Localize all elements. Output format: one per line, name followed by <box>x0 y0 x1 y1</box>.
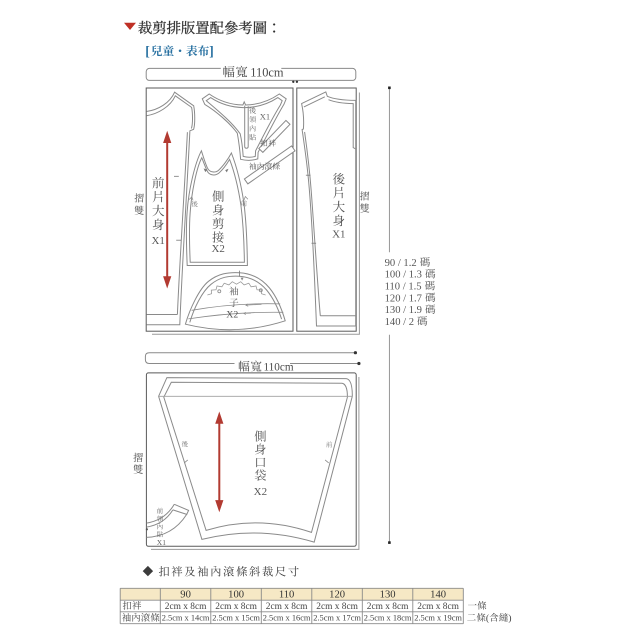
svg-text:110: 110 <box>279 589 295 600</box>
svg-text:2.5cm x 15cm: 2.5cm x 15cm <box>212 614 260 623</box>
svg-text:(: ( <box>486 613 489 624</box>
svg-text:X1: X1 <box>260 112 270 122</box>
svg-text:2cm x 8cm: 2cm x 8cm <box>417 602 459 612</box>
svg-text:110cm: 110cm <box>250 65 284 79</box>
svg-text:110 / 1.5: 110 / 1.5 <box>385 282 422 293</box>
svg-text:2cm x 8cm: 2cm x 8cm <box>266 602 308 612</box>
svg-text:X2: X2 <box>226 309 238 320</box>
svg-text:): ) <box>508 613 511 624</box>
svg-text:[: [ <box>145 44 150 59</box>
svg-text:120: 120 <box>329 589 345 600</box>
svg-text:140 / 2: 140 / 2 <box>385 317 414 328</box>
svg-text:2cm x 8cm: 2cm x 8cm <box>316 602 358 612</box>
svg-text:2.5cm x 14cm: 2.5cm x 14cm <box>162 614 210 623</box>
svg-text:2.5cm x 17cm: 2.5cm x 17cm <box>313 614 361 623</box>
svg-text:130: 130 <box>380 589 396 600</box>
svg-text:2.5cm x 18cm: 2.5cm x 18cm <box>364 614 412 623</box>
svg-text:X2: X2 <box>211 243 224 255</box>
svg-text:2cm x 8cm: 2cm x 8cm <box>367 602 409 612</box>
svg-text:2.5cm x 19cm: 2.5cm x 19cm <box>414 614 462 623</box>
svg-text:90 / 1.2: 90 / 1.2 <box>385 258 417 269</box>
svg-text:X2: X2 <box>254 486 267 498</box>
svg-text:100: 100 <box>228 589 244 600</box>
svg-text:100 / 1.3: 100 / 1.3 <box>385 270 422 281</box>
svg-text:]: ] <box>209 44 214 59</box>
svg-text:130 / 1.9: 130 / 1.9 <box>385 305 422 316</box>
svg-text:2.5cm x 16cm: 2.5cm x 16cm <box>263 614 311 623</box>
svg-text:120 / 1.7: 120 / 1.7 <box>385 293 422 304</box>
svg-text:90: 90 <box>180 589 191 600</box>
svg-text:X1: X1 <box>151 235 164 247</box>
svg-text:X1: X1 <box>332 228 345 240</box>
svg-text:2cm x 8cm: 2cm x 8cm <box>165 602 207 612</box>
svg-text:110cm: 110cm <box>264 362 294 374</box>
svg-text:X1: X1 <box>157 538 166 547</box>
svg-text:140: 140 <box>430 589 446 600</box>
svg-text:2cm x 8cm: 2cm x 8cm <box>215 602 257 612</box>
